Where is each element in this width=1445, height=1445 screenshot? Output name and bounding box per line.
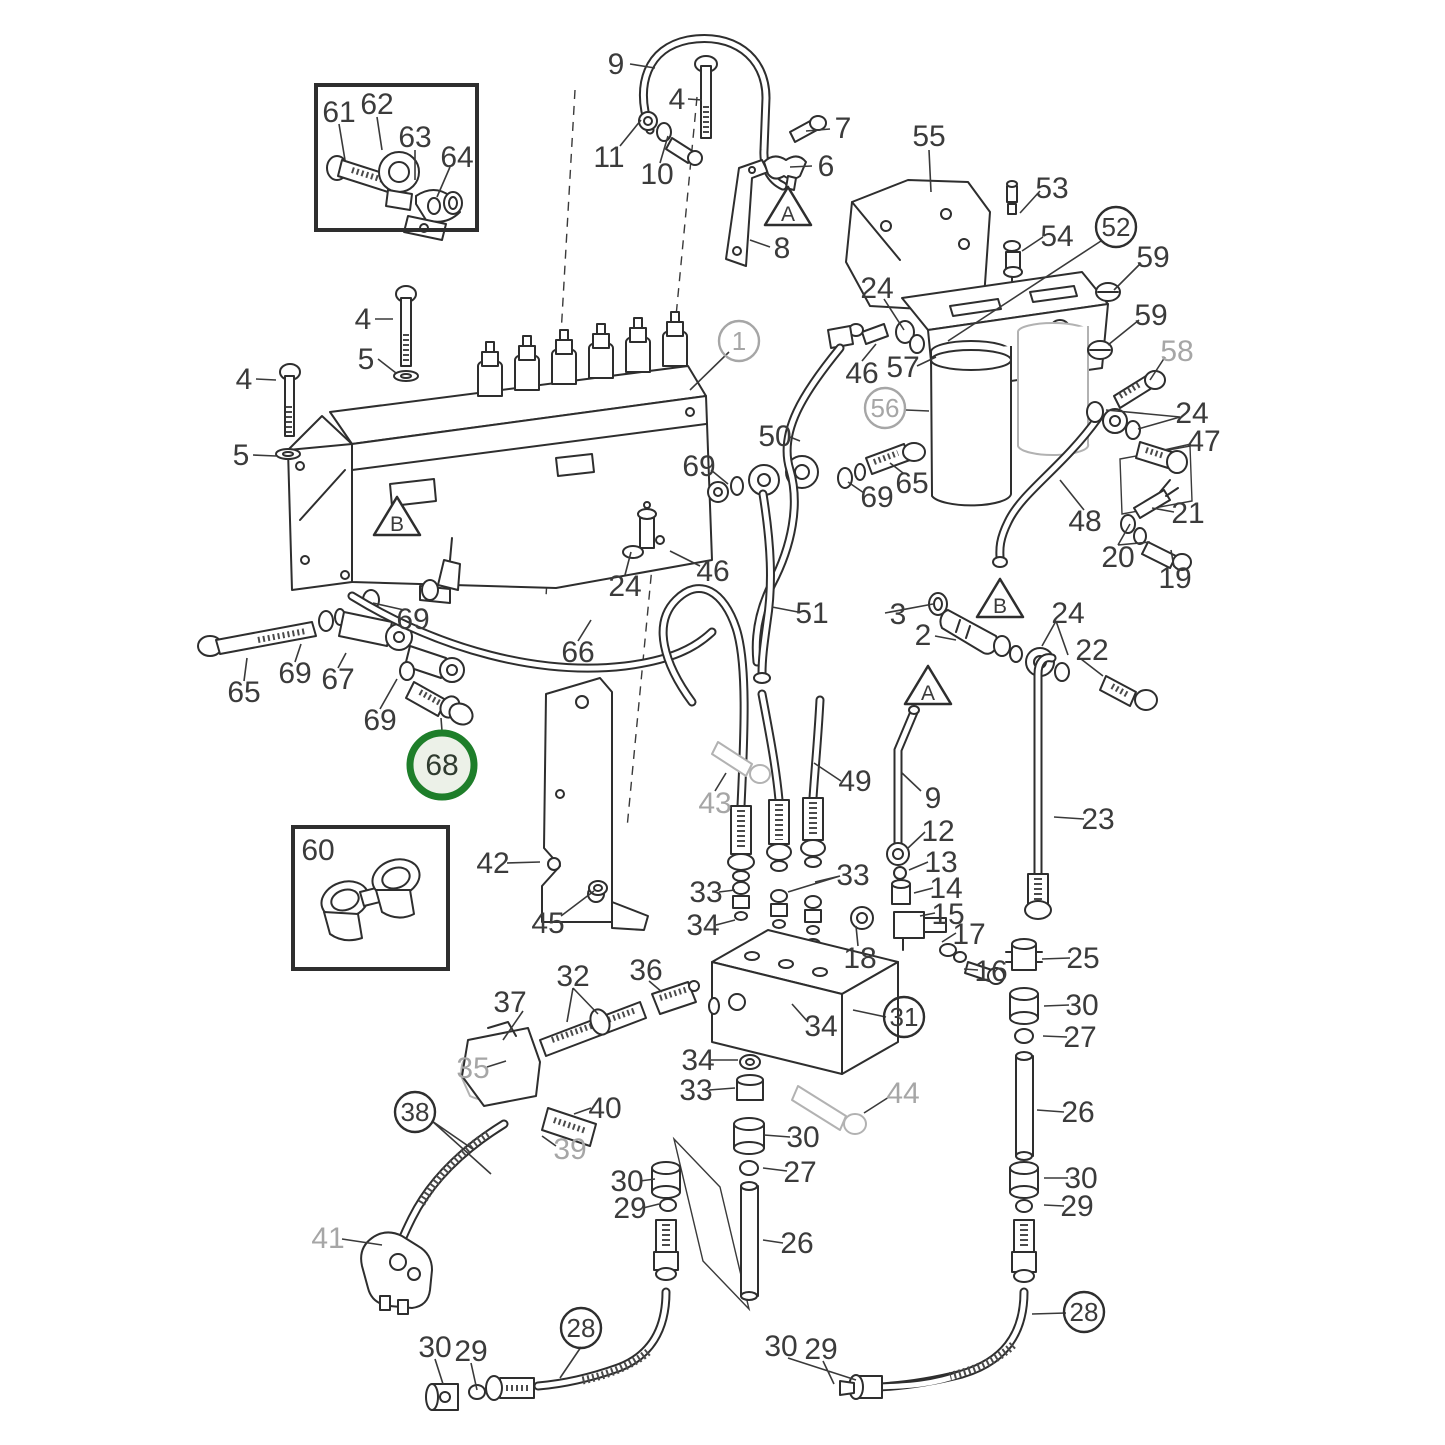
part-label-49-53: 49: [838, 765, 871, 798]
part-label-52-14: 52: [1096, 207, 1136, 247]
svg-text:4: 4: [236, 363, 253, 396]
part-label-22-50: 22: [1075, 634, 1108, 667]
part-label-69-40: 69: [363, 704, 396, 737]
part-label-69-43: 69: [682, 450, 715, 483]
svg-text:46: 46: [696, 555, 729, 588]
part-label-33-58: 33: [836, 859, 869, 892]
svg-text:40: 40: [588, 1092, 621, 1125]
svg-text:16: 16: [974, 955, 1007, 988]
part-label-56-21: 56: [865, 388, 905, 428]
part-label-59-15: 59: [1136, 241, 1169, 274]
svg-text:65: 65: [895, 467, 928, 500]
svg-text:38: 38: [401, 1097, 430, 1127]
part-label-35-83: 35: [456, 1052, 489, 1085]
part-label-61-0: 61: [322, 96, 355, 129]
part-label-4-28: 4: [355, 303, 372, 336]
part-label-30-75: 30: [1065, 989, 1098, 1022]
bracket-42: [542, 678, 648, 930]
part-label-30-91: 30: [418, 1331, 451, 1364]
part-label-26-77: 26: [1061, 1096, 1094, 1129]
svg-text:33: 33: [689, 876, 722, 909]
svg-text:33: 33: [836, 859, 869, 892]
part-label-29-97: 29: [804, 1333, 837, 1366]
svg-text:51: 51: [795, 597, 828, 630]
part-label-43-54: 43: [698, 787, 731, 820]
part-label-1-32: 1: [719, 321, 759, 361]
svg-text:24: 24: [1051, 597, 1084, 630]
part-label-36-67: 36: [629, 954, 662, 987]
part-label-46-35: 46: [696, 555, 729, 588]
exploded-parts-drawing: ABBA 61626364947611108555354525959582446…: [0, 0, 1445, 1445]
part-label-11-8: 11: [593, 141, 624, 174]
svg-text:24: 24: [608, 570, 641, 603]
svg-text:5: 5: [233, 439, 250, 472]
part-label-29-89: 29: [613, 1192, 646, 1225]
part-label-24-18: 24: [860, 272, 893, 305]
svg-text:34: 34: [681, 1044, 714, 1077]
part-label-23-52: 23: [1081, 803, 1114, 836]
svg-text:69: 69: [860, 481, 893, 514]
part-label-32-68: 32: [556, 960, 589, 993]
svg-text:12: 12: [921, 815, 954, 848]
svg-text:35: 35: [456, 1052, 489, 1085]
svg-text:3: 3: [890, 598, 907, 631]
part-label-53-12: 53: [1035, 172, 1068, 205]
part-label-39-86: 39: [553, 1133, 586, 1166]
svg-text:23: 23: [1081, 803, 1114, 836]
part-label-34-59: 34: [686, 909, 719, 942]
part-label-21-24: 21: [1171, 497, 1204, 530]
part-label-60-81: 60: [301, 834, 334, 867]
svg-text:55: 55: [912, 120, 945, 153]
part-label-27-76: 27: [1063, 1021, 1096, 1054]
svg-text:4: 4: [669, 83, 686, 116]
svg-text:A: A: [921, 682, 935, 705]
svg-text:26: 26: [1061, 1096, 1094, 1129]
part-label-40-85: 40: [588, 1092, 621, 1125]
svg-text:36: 36: [629, 954, 662, 987]
svg-text:28: 28: [567, 1313, 596, 1343]
svg-text:29: 29: [1060, 1190, 1093, 1223]
svg-text:34: 34: [686, 909, 719, 942]
injection-pump: [288, 312, 712, 603]
part-label-33-72: 33: [679, 1074, 712, 1107]
part-label-38-84: 38: [395, 1092, 435, 1132]
part-label-17-64: 17: [952, 918, 985, 951]
svg-text:27: 27: [783, 1156, 816, 1189]
svg-text:10: 10: [640, 158, 673, 191]
svg-text:4: 4: [355, 303, 372, 336]
svg-text:A: A: [781, 203, 795, 226]
part-label-16-65: 16: [974, 955, 1007, 988]
part-label-68-41[interactable]: 68: [410, 733, 474, 797]
part-label-37-82: 37: [493, 986, 526, 1019]
part-number-labels: 6162636494761110855535452595958244657562…: [227, 48, 1220, 1368]
part-label-33-57: 33: [689, 876, 722, 909]
part-label-26-95: 26: [780, 1227, 813, 1260]
svg-text:26: 26: [780, 1227, 813, 1260]
svg-text:27: 27: [1063, 1021, 1096, 1054]
part-label-69-33: 69: [396, 603, 429, 636]
part-label-4-30: 4: [236, 363, 253, 396]
part-label-54-13: 54: [1040, 220, 1073, 253]
svg-text:25: 25: [1066, 942, 1099, 975]
svg-text:48: 48: [1068, 505, 1101, 538]
svg-text:37: 37: [493, 986, 526, 1019]
svg-text:49: 49: [838, 765, 871, 798]
part-label-29-79: 29: [1060, 1190, 1093, 1223]
svg-text:29: 29: [804, 1333, 837, 1366]
part-label-29-92: 29: [454, 1335, 487, 1368]
svg-text:B: B: [993, 595, 1007, 618]
part-label-12-60: 12: [921, 815, 954, 848]
svg-text:7: 7: [835, 112, 852, 145]
svg-text:24: 24: [860, 272, 893, 305]
part-label-8-10: 8: [774, 232, 791, 265]
part-label-62-1: 62: [360, 88, 393, 121]
svg-text:29: 29: [613, 1192, 646, 1225]
svg-text:2: 2: [915, 619, 932, 652]
part-label-18-66: 18: [843, 942, 876, 975]
svg-text:46: 46: [845, 357, 878, 390]
svg-text:41: 41: [311, 1222, 344, 1255]
svg-text:39: 39: [553, 1133, 586, 1166]
svg-text:52: 52: [1102, 212, 1131, 242]
svg-text:9: 9: [608, 48, 625, 81]
part-label-30-96: 30: [764, 1330, 797, 1363]
svg-text:30: 30: [418, 1331, 451, 1364]
svg-text:33: 33: [679, 1074, 712, 1107]
part-label-65-37: 65: [227, 676, 260, 709]
svg-text:6: 6: [818, 150, 835, 183]
valve-2-group: [929, 593, 1157, 710]
part-label-7-6: 7: [835, 112, 852, 145]
svg-text:30: 30: [1065, 989, 1098, 1022]
svg-text:18: 18: [843, 942, 876, 975]
part-label-19-26: 19: [1158, 562, 1191, 595]
svg-text:60: 60: [301, 834, 334, 867]
svg-text:17: 17: [952, 918, 985, 951]
svg-text:5: 5: [358, 343, 375, 376]
svg-text:22: 22: [1075, 634, 1108, 667]
ref-marker-A: A: [905, 666, 951, 705]
part-label-28-80: 28: [1064, 1292, 1104, 1332]
part-label-66-36: 66: [561, 636, 594, 669]
svg-text:30: 30: [786, 1121, 819, 1154]
svg-text:56: 56: [871, 393, 900, 423]
svg-text:31: 31: [890, 1002, 919, 1032]
part-label-46-19: 46: [845, 357, 878, 390]
part-label-25-74: 25: [1066, 942, 1099, 975]
part-label-2-48: 2: [915, 619, 932, 652]
part-label-27-94: 27: [783, 1156, 816, 1189]
part-label-24-49: 24: [1051, 597, 1084, 630]
svg-text:50: 50: [758, 420, 791, 453]
ref-marker-A: A: [765, 187, 811, 226]
part-label-63-2: 63: [398, 121, 431, 154]
svg-text:69: 69: [396, 603, 429, 636]
svg-text:59: 59: [1136, 241, 1169, 274]
svg-text:45: 45: [531, 907, 564, 940]
part-label-45-56: 45: [531, 907, 564, 940]
lower-left-hose-assembly: [361, 981, 699, 1314]
hose-23: [1025, 658, 1052, 919]
svg-text:30: 30: [764, 1330, 797, 1363]
svg-text:34: 34: [804, 1010, 837, 1043]
part-label-48-27: 48: [1068, 505, 1101, 538]
part-label-5-29: 5: [358, 343, 375, 376]
parts-diagram-page: ABBA 61626364947611108555354525959582446…: [0, 0, 1445, 1445]
svg-text:69: 69: [682, 450, 715, 483]
svg-text:8: 8: [774, 232, 791, 265]
part-label-6-7: 6: [818, 150, 835, 183]
svg-text:21: 21: [1171, 497, 1204, 530]
svg-text:11: 11: [593, 141, 624, 174]
svg-text:61: 61: [322, 96, 355, 129]
part-label-20-25: 20: [1101, 541, 1134, 574]
svg-text:53: 53: [1035, 172, 1068, 205]
part-label-55-11: 55: [912, 120, 945, 153]
part-label-57-20: 57: [886, 351, 919, 384]
svg-text:67: 67: [321, 663, 354, 696]
part-label-59-16: 59: [1134, 299, 1167, 332]
svg-text:44: 44: [886, 1077, 919, 1110]
svg-text:54: 54: [1040, 220, 1073, 253]
svg-text:64: 64: [440, 141, 473, 174]
svg-text:28: 28: [1070, 1297, 1099, 1327]
svg-text:57: 57: [886, 351, 919, 384]
part-label-64-3: 64: [440, 141, 473, 174]
svg-text:29: 29: [454, 1335, 487, 1368]
part-label-42-55: 42: [476, 847, 509, 880]
svg-text:69: 69: [278, 657, 311, 690]
part-label-44-73: 44: [886, 1077, 919, 1110]
part-label-5-31: 5: [233, 439, 250, 472]
hose-bundle-49: [663, 589, 825, 881]
part-label-51-46: 51: [795, 597, 828, 630]
part-label-10-9: 10: [640, 158, 673, 191]
part-label-69-44: 69: [860, 481, 893, 514]
part-label-65-45: 65: [895, 467, 928, 500]
part-label-4-5: 4: [669, 83, 686, 116]
part-label-67-39: 67: [321, 663, 354, 696]
svg-text:59: 59: [1134, 299, 1167, 332]
part-label-50-42: 50: [758, 420, 791, 453]
svg-text:43: 43: [698, 787, 731, 820]
svg-text:19: 19: [1158, 562, 1191, 595]
part-label-41-87: 41: [311, 1222, 344, 1255]
svg-text:68: 68: [425, 749, 458, 782]
svg-text:1: 1: [732, 326, 746, 356]
part-label-30-93: 30: [786, 1121, 819, 1154]
part-label-9-51: 9: [925, 782, 942, 815]
svg-text:63: 63: [398, 121, 431, 154]
svg-text:32: 32: [556, 960, 589, 993]
svg-text:B: B: [390, 513, 404, 536]
part-label-58-17: 58: [1160, 335, 1193, 368]
svg-text:47: 47: [1187, 425, 1220, 458]
part-label-31-69: 31: [884, 997, 924, 1037]
svg-text:69: 69: [363, 704, 396, 737]
part-label-34-71: 34: [681, 1044, 714, 1077]
part-label-9-4: 9: [608, 48, 625, 81]
part-label-47-23: 47: [1187, 425, 1220, 458]
svg-text:66: 66: [561, 636, 594, 669]
svg-text:58: 58: [1160, 335, 1193, 368]
part-label-69-38: 69: [278, 657, 311, 690]
svg-text:65: 65: [227, 676, 260, 709]
part-label-3-47: 3: [890, 598, 907, 631]
part-label-24-34: 24: [608, 570, 641, 603]
svg-text:62: 62: [360, 88, 393, 121]
top-pipe-assembly: [639, 38, 826, 266]
svg-text:9: 9: [925, 782, 942, 815]
part-label-28-90: 28: [561, 1308, 601, 1348]
ref-marker-B: B: [977, 579, 1023, 618]
svg-text:20: 20: [1101, 541, 1134, 574]
svg-text:42: 42: [476, 847, 509, 880]
part-label-34-70: 34: [804, 1010, 837, 1043]
